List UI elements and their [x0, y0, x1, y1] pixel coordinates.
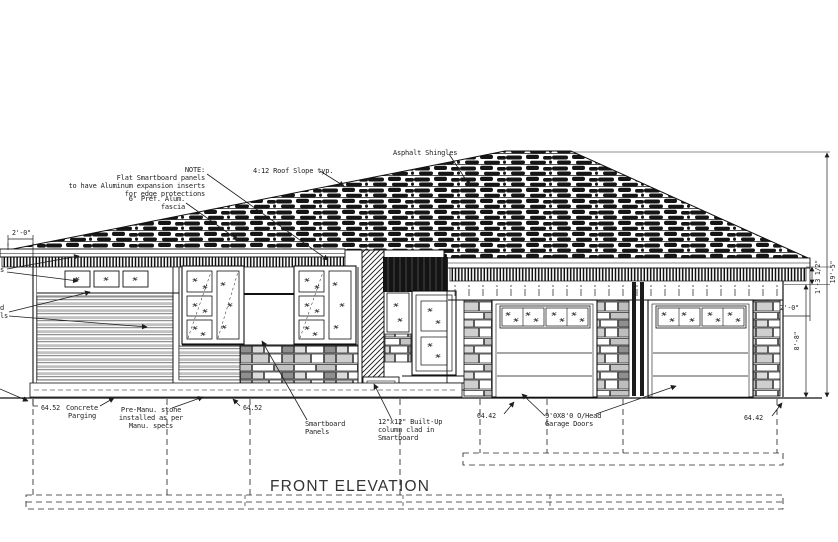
column-label-3: Smartboard	[378, 434, 418, 442]
elev-tick-main-left	[33, 399, 38, 406]
stone-label-2: installed as per	[119, 414, 183, 422]
dim-frieze-height: 1'-3 1/2"	[814, 260, 822, 294]
smartboard-column	[362, 250, 384, 396]
parging-label-1: Concrete	[66, 404, 98, 412]
garage-door-2	[648, 300, 753, 397]
stone-pillar-left	[464, 300, 492, 396]
elev-leader-garage-left	[504, 402, 514, 414]
entry-sidelite	[387, 293, 409, 332]
roof-shingle-field	[8, 151, 808, 258]
note-line-3: to have Aluminum expansion inserts	[69, 182, 206, 190]
column-label-1: 12"x12" Built-Up	[378, 418, 442, 426]
cut-label-2: d	[0, 304, 4, 312]
fascia-left	[0, 249, 345, 257]
dim-wall-height: 8'-8"	[793, 332, 801, 351]
roof	[8, 151, 830, 258]
roof-slope-label: 4:12 Roof Slope typ.	[253, 167, 333, 175]
window-b-pane-1	[299, 271, 324, 292]
shingles-label: Asphalt Shingles	[393, 149, 457, 157]
fascia-label-2: fascia	[161, 203, 185, 211]
window-a-pane-1	[187, 271, 212, 292]
stone-pillar-right	[752, 300, 780, 396]
window-b-pane-2	[299, 296, 324, 316]
dim-overall-height: 19'-5"	[829, 261, 837, 284]
downspout-strip-b	[640, 282, 644, 396]
porch-shadow	[383, 257, 448, 292]
dim-left-overhang: 2'-0"	[12, 229, 31, 237]
stone-pillar-middle	[597, 300, 629, 396]
elevation-sheet: NOTE: Flat Smartboard panels to have Alu…	[0, 0, 838, 542]
entry-door-lite-bottom	[421, 337, 447, 365]
downspout-strip-a	[632, 282, 636, 396]
drawing-title: FRONT ELEVATION	[270, 478, 430, 495]
elev-garage-right: 64.42	[744, 414, 763, 422]
window-section	[179, 266, 358, 396]
stone-label-1: Pre-Manu. stone	[121, 406, 181, 414]
cut-leader-5	[0, 389, 28, 401]
soffit-right	[450, 268, 806, 281]
garage-doors-label-2: Garage Doors	[545, 420, 593, 428]
smartboard-label-1: Smartboard	[305, 420, 345, 428]
elev-main-right: 64.52	[243, 404, 262, 412]
elev-leader-mid	[233, 399, 240, 406]
window-b-pane-3	[299, 320, 324, 339]
smartboard-label-2: Panels	[305, 428, 329, 436]
window-a-pane-2	[187, 296, 212, 316]
window-a-pane-3	[187, 320, 212, 339]
garage-section	[447, 281, 783, 397]
parging-leader	[100, 398, 114, 406]
note-line-1: NOTE:	[185, 166, 205, 174]
garage-door-1	[492, 300, 597, 397]
window-b-tall-pane	[329, 271, 351, 339]
cut-label-3: ls	[0, 312, 8, 320]
note-line-2: Flat Smartboard panels	[117, 174, 205, 182]
fascia-label-1: 6" Pref. Alum.	[129, 195, 185, 203]
cut-label-1: s	[0, 266, 4, 274]
left-wall-section	[33, 267, 179, 397]
garage-footing	[463, 453, 783, 465]
elev-main-left: 64.52	[41, 404, 60, 412]
dim-right-overhang: 2'-0"	[780, 304, 799, 312]
siding-field	[37, 296, 173, 380]
stone-label-3: Manu. specs	[129, 422, 173, 430]
garage-doors-label-1: 9'0X8'0 O/Head	[545, 412, 601, 420]
entry-door-lite-top	[421, 301, 447, 331]
elev-garage-left: 64.42	[477, 412, 496, 420]
column-label-2: column clad in	[378, 426, 434, 434]
elevation-drawing: NOTE: Flat Smartboard panels to have Alu…	[0, 0, 838, 542]
siding-under-windows	[179, 346, 240, 380]
stone-under-sidelite	[385, 334, 411, 362]
window-a-tall-pane	[217, 271, 239, 339]
parging-label-2: Parging	[68, 412, 96, 420]
garage-frieze-vents	[448, 285, 783, 296]
